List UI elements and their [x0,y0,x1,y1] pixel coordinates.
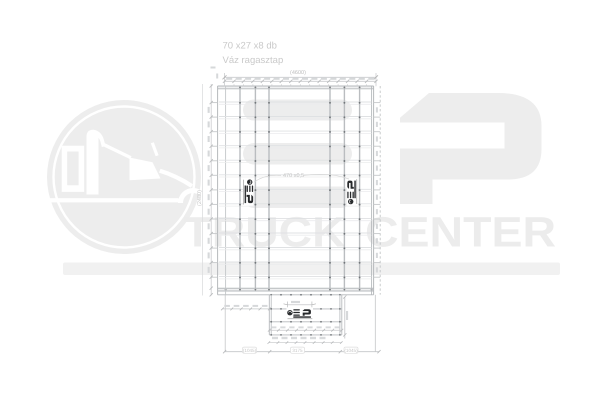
svg-text:(4600): (4600) [290,70,306,76]
svg-text:Váz ragasztap: Váz ragasztap [223,55,284,66]
svg-text:(1045): (1045) [344,348,358,353]
svg-text:(1045): (1045) [243,348,257,353]
svg-text:70 x27 x8 db: 70 x27 x8 db [223,41,277,52]
svg-text:3175: 3175 [292,348,303,353]
svg-text:CENTER: CENTER [365,210,556,257]
svg-text:470 x0,5: 470 x0,5 [283,173,304,179]
svg-text:(2480): (2480) [197,190,203,206]
